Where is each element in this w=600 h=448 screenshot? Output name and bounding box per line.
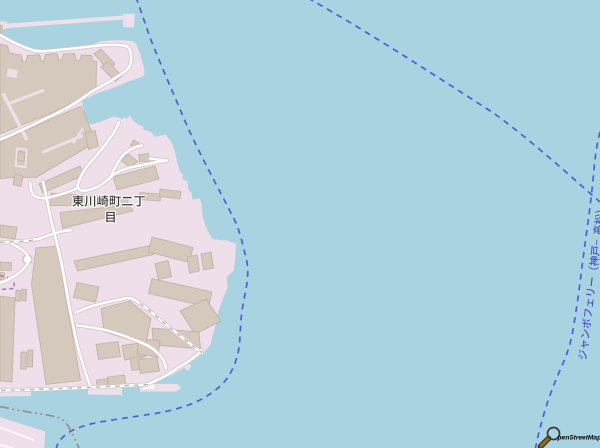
svg-text:penStreetMap: penStreetMap	[557, 435, 600, 442]
